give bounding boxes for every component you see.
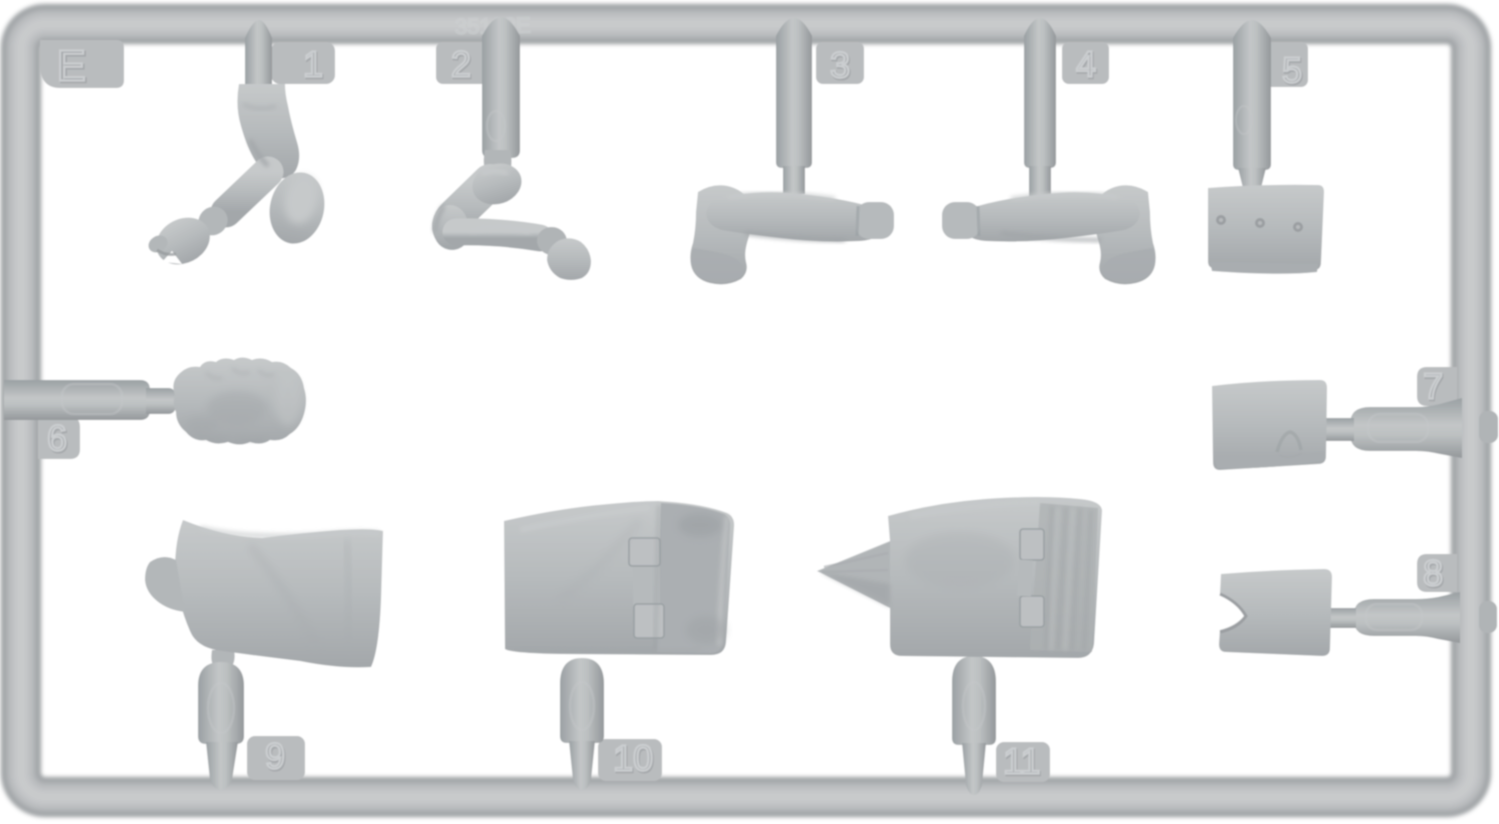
- svg-text:11: 11: [1003, 741, 1040, 782]
- svg-text:10: 10: [613, 738, 653, 779]
- svg-text:5: 5: [1282, 50, 1302, 91]
- svg-text:1: 1: [303, 44, 323, 85]
- svg-text:6: 6: [47, 418, 67, 459]
- svg-text:E: E: [57, 42, 86, 91]
- svg-text:2: 2: [451, 44, 471, 85]
- svg-text:8: 8: [1423, 553, 1443, 594]
- svg-text:9: 9: [265, 736, 285, 777]
- svg-text:7: 7: [1423, 366, 1443, 407]
- svg-text:3: 3: [830, 45, 850, 86]
- svg-text:4: 4: [1076, 44, 1096, 85]
